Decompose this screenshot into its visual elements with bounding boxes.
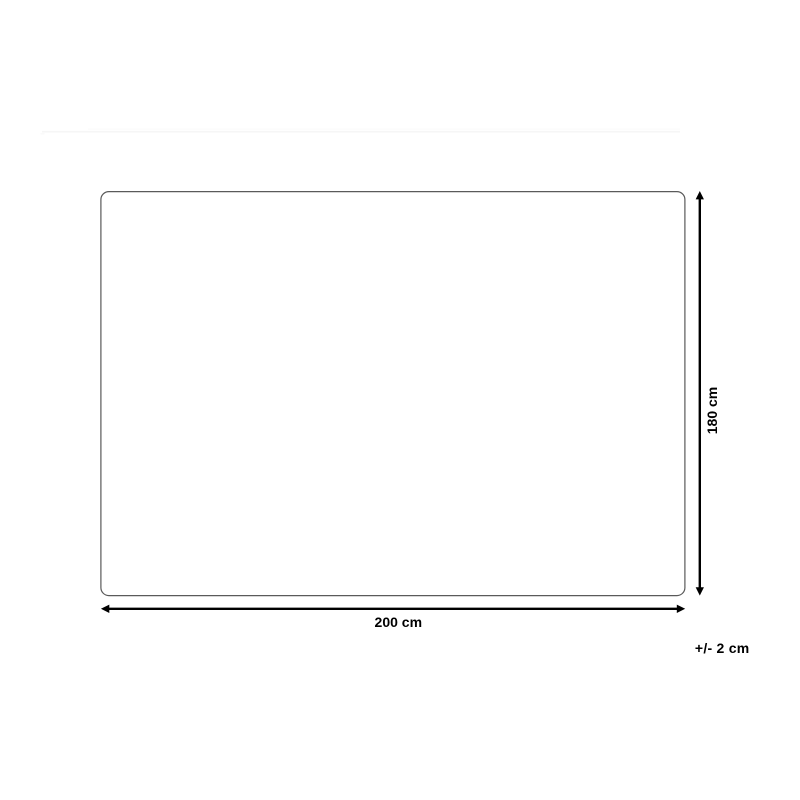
svg-text:+/- 2 cm: +/- 2 cm (695, 640, 750, 656)
svg-text:180 cm: 180 cm (704, 387, 720, 434)
svg-text:200 cm: 200 cm (375, 614, 422, 630)
